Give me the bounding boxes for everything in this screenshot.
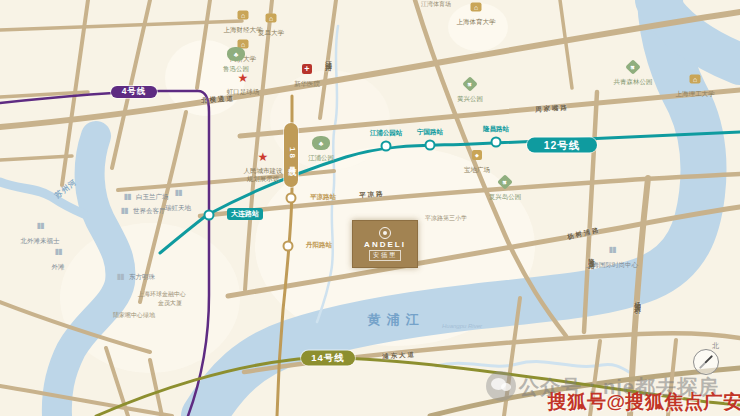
north-bund-raffles-label: 北外滩来福士 xyxy=(21,237,60,245)
shanghai-sport-university-label: 上海体育大学 xyxy=(457,18,496,26)
longchang-road-station-marker xyxy=(491,137,502,148)
jiangpu-park-station-label: 江浦公园站 xyxy=(370,129,403,138)
world-reception-hall-label: 世界会客厅 xyxy=(133,207,166,215)
metro-line-12-badge: 12号线 xyxy=(527,138,597,153)
danyang-road-station-label: 丹阳路站 xyxy=(306,241,332,250)
road-label-6: 杨浦大桥 xyxy=(633,296,642,304)
hospital-icon: + xyxy=(302,64,312,74)
lujiazui-green-label: 陆家嘴中心绿地 xyxy=(113,312,155,319)
baodi-plaza-icon: ◆ xyxy=(472,150,482,160)
park-tree-icon: ♣ xyxy=(462,76,478,92)
danyang-road-station-marker xyxy=(283,241,294,252)
luxun-park-icon: ♣ xyxy=(227,47,245,61)
compass-needle-icon xyxy=(699,355,713,369)
mall-icon: ◆ xyxy=(472,150,482,160)
star-icon: ★ xyxy=(238,72,249,84)
pingliang-road-station-label: 平凉路站 xyxy=(310,193,336,202)
gongqing-forest-park-icon: ♣ xyxy=(628,62,639,73)
oriental-pearl-tower-icon: ▮▮ xyxy=(117,273,124,281)
watermark-sohu-account: 搜狐号@搜狐焦点广安站 xyxy=(548,389,740,415)
road-label-5: 隆昌路 xyxy=(587,253,596,259)
fudan-university-label: 复旦大学 xyxy=(258,29,284,37)
road-label-3: 平凉路 xyxy=(359,190,385,201)
ruihong-tiandi-icon: ▮▮ xyxy=(175,189,182,197)
road-27 xyxy=(0,156,72,160)
shanghai-world-financial-center-label: 上海环球金融中心 xyxy=(138,291,186,298)
pingliang-road-station-marker xyxy=(286,193,297,204)
property-name-en: ANDELI xyxy=(364,240,406,249)
ningguo-road-station-marker xyxy=(425,140,436,151)
fuxing-island-park-label: 复兴岛公园 xyxy=(489,193,522,201)
river-label-2: Huangpu River xyxy=(442,323,482,329)
gongqing-forest-park-label: 共青森林公园 xyxy=(614,78,653,86)
xinhua-hospital-label: 新华医院 xyxy=(294,80,320,88)
huangxing-park-icon: ♣ xyxy=(465,79,476,90)
intl-fashion-center-label: 上海国际时尚中心 xyxy=(586,261,638,269)
wechat-icon xyxy=(486,371,516,401)
dalian-road-station-marker xyxy=(204,210,215,221)
park-tree-icon: ♣ xyxy=(497,174,513,190)
jiangpu-park-station-marker xyxy=(381,141,392,152)
north-bund-raffles-icon: ▮▮ xyxy=(37,222,44,230)
hongkou-stadium-label: 虹口足球场 xyxy=(227,88,260,96)
huangxing-park-label: 黄兴公园 xyxy=(457,95,483,103)
metro-line-4-badge: 4号线 xyxy=(111,86,157,98)
shanghai-univ-finance-icon: ⌂ xyxy=(238,11,249,20)
jiangwan-stadium-label: 江湾体育场 xyxy=(421,1,451,8)
map-canvas: ANDELI 安德里 北 公众号：nje都去探房 搜狐号@搜狐焦点广安站 北横通… xyxy=(0,0,740,416)
university-icon: ⌂ xyxy=(471,3,482,12)
usst-university-label: 上海理工大学 xyxy=(676,90,715,98)
fuxing-island-park-icon: ♣ xyxy=(500,177,511,188)
property-name-cn: 安德里 xyxy=(369,250,401,261)
the-bund-icon: ▮▮ xyxy=(55,248,62,256)
pingliang-no3-school-label: 平凉路第三小学 xyxy=(425,215,467,222)
building-icon: ▮▮ xyxy=(37,222,44,230)
jiangpu-park-label: 江浦公园 xyxy=(308,154,334,162)
university-icon: ⌂ xyxy=(266,14,277,23)
compass-icon xyxy=(693,349,719,375)
xinhua-hospital-icon: + xyxy=(302,64,312,74)
people-city-exhibition-icon: ★ xyxy=(258,151,269,163)
building-icon: ▮▮ xyxy=(117,273,124,281)
ningguo-road-station-label: 宁国路站 xyxy=(417,128,443,137)
road-label-7: 江浦路 xyxy=(324,55,333,61)
star-icon: ★ xyxy=(258,151,269,163)
white-magnolia-plaza-label: 白玉兰广场 xyxy=(136,193,169,201)
road-5 xyxy=(245,124,259,290)
jinmao-tower-label: 金茂大厦 xyxy=(158,300,182,307)
compass-north-label: 北 xyxy=(712,341,719,351)
hongkou-stadium-icon: ★ xyxy=(238,72,249,84)
world-reception-hall-icon: ▮▮ xyxy=(121,207,128,215)
building-icon: ▮▮ xyxy=(121,207,128,215)
south-bank-creek xyxy=(436,362,629,372)
building-icon: ▮▮ xyxy=(124,193,131,201)
white-magnolia-plaza-icon: ▮▮ xyxy=(124,193,131,201)
property-block-andeli: ANDELI 安德里 xyxy=(352,220,418,268)
usst-university-icon: ⌂ xyxy=(690,75,701,84)
park-tree-icon: ♣ xyxy=(625,59,641,75)
building-icon: ▮▮ xyxy=(175,189,182,197)
university-icon: ⌂ xyxy=(238,11,249,20)
metro-line-18-badge: 18号线 xyxy=(284,123,298,187)
intl-fashion-center-icon: ▮▮ xyxy=(609,246,616,254)
shanghai-univ-finance-label: 上海财经大学 xyxy=(224,26,263,34)
fudan-university-icon: ⌂ xyxy=(266,14,277,23)
oriental-pearl-tower-label: 东方明珠 xyxy=(129,273,155,281)
jiangpu-park-icon: ♣ xyxy=(312,136,330,150)
building-icon: ▮▮ xyxy=(55,248,62,256)
university-icon: ⌂ xyxy=(690,75,701,84)
dalian-road-station-label: 大连路站 xyxy=(227,208,263,220)
people-city-exhibition-label: 人民城市建设 规划展示馆 xyxy=(244,167,283,183)
shanghai-sport-university-icon: ⌂ xyxy=(471,3,482,12)
baodi-plaza-label: 宝地广场 xyxy=(464,166,490,174)
park-tree-icon: ♣ xyxy=(227,47,245,61)
the-bund-label: 外滩 xyxy=(52,263,65,271)
road-22 xyxy=(0,386,172,416)
longchang-road-station-label: 隆昌路站 xyxy=(483,125,509,134)
building-icon: ▮▮ xyxy=(609,246,616,254)
metro-line-14-badge: 14号线 xyxy=(301,351,355,366)
river-label-1: 黄浦江 xyxy=(368,311,425,329)
ruihong-tiandi-label: 瑞虹天地 xyxy=(165,204,191,212)
property-logo-icon xyxy=(379,227,391,239)
park-tree-icon: ♣ xyxy=(312,136,330,150)
